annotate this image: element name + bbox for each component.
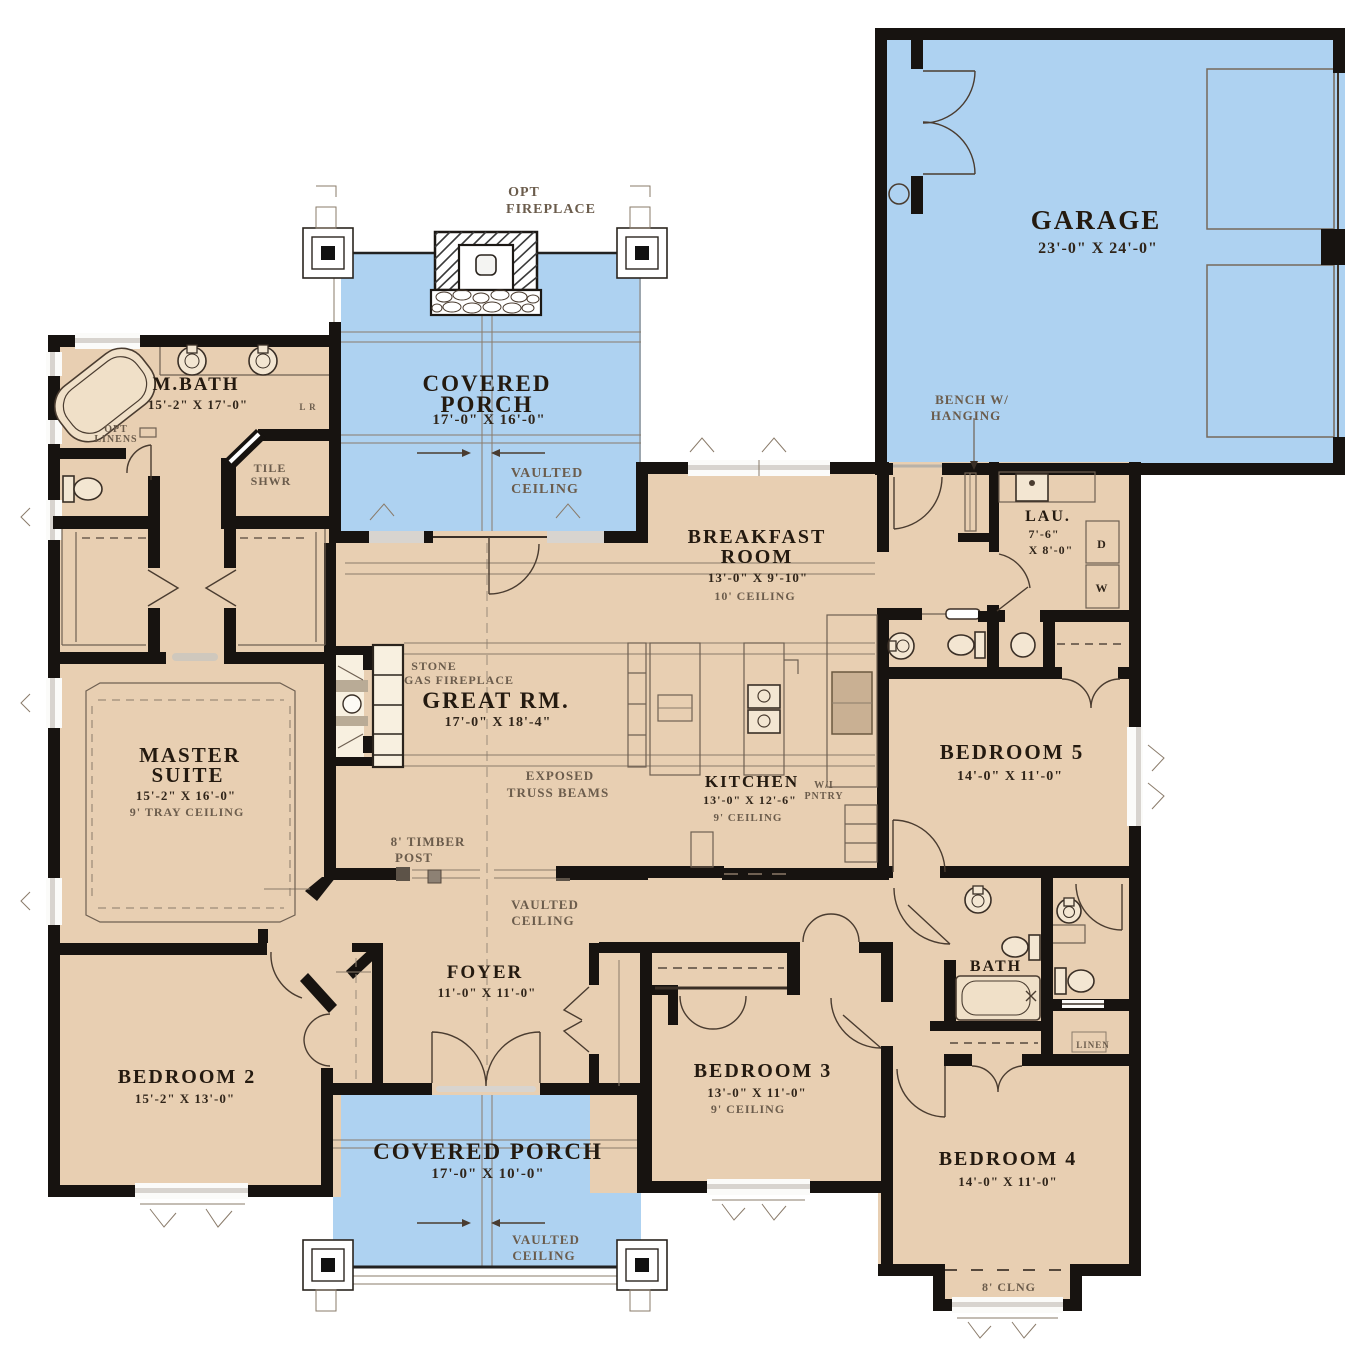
svg-text:ROOM: ROOM	[721, 546, 793, 568]
svg-text:10' CEILING: 10' CEILING	[714, 589, 795, 603]
svg-text:9' CEILING: 9' CEILING	[714, 812, 783, 824]
svg-text:OPT: OPT	[508, 185, 540, 200]
svg-text:BEDROOM 4: BEDROOM 4	[939, 1148, 1078, 1170]
svg-text:BATH: BATH	[970, 958, 1022, 975]
svg-text:13'-0" X 9'-10": 13'-0" X 9'-10"	[708, 570, 808, 585]
svg-text:15'-2" X 13'-0": 15'-2" X 13'-0"	[135, 1091, 235, 1106]
svg-text:BREAKFAST: BREAKFAST	[688, 526, 827, 548]
svg-text:VAULTED: VAULTED	[512, 1232, 580, 1247]
svg-text:CEILING: CEILING	[511, 913, 574, 928]
svg-text:EXPOSED: EXPOSED	[526, 768, 594, 783]
svg-text:CEILING: CEILING	[511, 482, 579, 497]
svg-text:9' TRAY CEILING: 9' TRAY CEILING	[130, 805, 245, 819]
svg-text:GARAGE: GARAGE	[1031, 205, 1162, 235]
svg-text:8' CLNG: 8' CLNG	[982, 1280, 1036, 1294]
svg-text:8' TIMBER: 8' TIMBER	[391, 834, 466, 849]
svg-text:FIREPLACE: FIREPLACE	[506, 202, 596, 217]
svg-text:9' CEILING: 9' CEILING	[711, 1102, 785, 1116]
svg-text:17'-0" X 16'-0": 17'-0" X 16'-0"	[432, 412, 545, 428]
svg-text:23'-0" X 24'-0": 23'-0" X 24'-0"	[1038, 240, 1158, 257]
svg-text:17'-0" X 10'-0": 17'-0" X 10'-0"	[431, 1166, 544, 1182]
svg-text:15'-2" X 16'-0": 15'-2" X 16'-0"	[136, 788, 236, 803]
svg-text:PNTRY: PNTRY	[804, 791, 843, 802]
svg-text:7'-6": 7'-6"	[1029, 527, 1060, 541]
svg-text:TILE: TILE	[254, 461, 287, 475]
svg-text:GREAT RM.: GREAT RM.	[422, 688, 570, 713]
svg-text:13'-0" X 11'-0": 13'-0" X 11'-0"	[707, 1085, 807, 1100]
svg-text:STONE: STONE	[411, 659, 456, 673]
svg-text:X 8'-0": X 8'-0"	[1029, 543, 1074, 557]
svg-text:FOYER: FOYER	[447, 962, 524, 983]
svg-text:L R: L R	[299, 402, 316, 412]
svg-text:BEDROOM 2: BEDROOM 2	[118, 1066, 257, 1088]
svg-text:11'-0" X 11'-0": 11'-0" X 11'-0"	[438, 985, 537, 1000]
svg-text:D: D	[1097, 537, 1107, 551]
svg-text:LINEN: LINEN	[1076, 1040, 1110, 1050]
svg-text:HANGING: HANGING	[931, 408, 1002, 423]
svg-text:COVERED PORCH: COVERED PORCH	[373, 1139, 603, 1164]
svg-text:BEDROOM 3: BEDROOM 3	[694, 1060, 833, 1082]
svg-text:17'-0" X 18'-4": 17'-0" X 18'-4"	[445, 715, 552, 730]
svg-text:KITCHEN: KITCHEN	[705, 772, 799, 791]
svg-text:LAU.: LAU.	[1025, 508, 1071, 525]
svg-text:15'-2" X 17'-0": 15'-2" X 17'-0"	[148, 397, 248, 412]
svg-text:GAS FIREPLACE: GAS FIREPLACE	[404, 673, 514, 687]
svg-text:W: W	[1096, 581, 1109, 595]
svg-text:VAULTED: VAULTED	[511, 466, 583, 481]
svg-text:SUITE: SUITE	[151, 763, 224, 787]
svg-text:14'-0" X 11'-0": 14'-0" X 11'-0"	[957, 769, 1063, 784]
svg-text:BENCH W/: BENCH W/	[935, 392, 1009, 407]
svg-text:M.BATH: M.BATH	[152, 374, 239, 395]
svg-text:CEILING: CEILING	[512, 1248, 575, 1263]
svg-text:14'-0" X 11'-0": 14'-0" X 11'-0"	[958, 1174, 1058, 1189]
svg-text:POST: POST	[395, 850, 433, 865]
svg-text:W/I: W/I	[814, 780, 834, 791]
svg-text:VAULTED: VAULTED	[511, 897, 579, 912]
svg-text:SHWR: SHWR	[251, 474, 292, 488]
svg-text:TRUSS BEAMS: TRUSS BEAMS	[507, 785, 609, 800]
svg-text:LINENS: LINENS	[94, 434, 137, 445]
svg-text:13'-0" X 12'-6": 13'-0" X 12'-6"	[703, 793, 797, 807]
svg-text:BEDROOM 5: BEDROOM 5	[940, 740, 1085, 764]
